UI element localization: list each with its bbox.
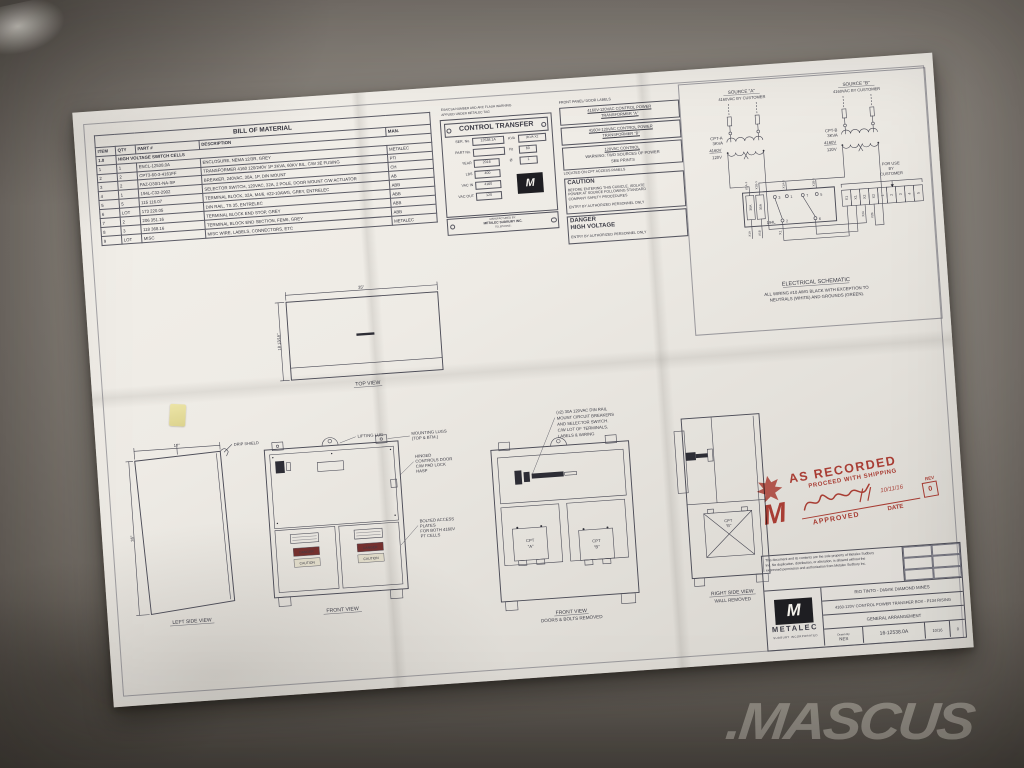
svg-text:4: 4 <box>908 192 912 194</box>
lifting-lug-callout: LIFTING LUG <box>357 432 383 439</box>
selector-switch-icon <box>685 452 696 461</box>
bolt-hole-icon <box>449 224 455 230</box>
svg-text:3: 3 <box>899 193 903 195</box>
view-caption: LEFT SIDE VIEW <box>172 617 212 626</box>
control-transfer-plate: CONTROL TRANSFER SER. No. 12538.1A PART … <box>440 112 559 218</box>
svg-text:HASP: HASP <box>416 468 428 474</box>
svg-text:PT CELLS: PT CELLS <box>420 532 440 538</box>
source-b: SOURCE "B" 4160VAC BY CUSTOMER CPT-B 3KV… <box>820 79 885 153</box>
svg-text:120V: 120V <box>827 147 837 153</box>
svg-text:CPT: CPT <box>526 538 535 544</box>
svg-text:X2: X2 <box>863 194 867 199</box>
svg-text:5: 5 <box>917 192 921 194</box>
svg-text:X2A: X2A <box>861 211 865 217</box>
switch-part-label: 194L <box>766 219 776 225</box>
svg-text:LABELS & WIRING: LABELS & WIRING <box>558 431 595 439</box>
drawn-by-cell: Drawn By NES <box>824 627 864 646</box>
bolt-hole-icon <box>551 217 557 223</box>
svg-text:5: 5 <box>820 193 822 197</box>
drip-shield-callout: DRIP SHIELD <box>234 440 259 447</box>
svg-text:X1A: X1A <box>747 231 751 237</box>
bom-table: BILL OF MATERIAL ITEM QTY PART # DESCRIP… <box>94 112 438 246</box>
door-labels-group: FRONT PANEL/ DOOR LABELS 4160V-120VAC CO… <box>559 92 679 100</box>
svg-text:2: 2 <box>786 219 788 223</box>
source-a: SOURCE "A" 4160VAC BY CUSTOMER CPT-A 3KV… <box>705 87 770 161</box>
stamp-rev-box: 0 <box>922 481 939 498</box>
svg-text:"B": "B" <box>726 523 732 528</box>
svg-text:4160VAC BY CUSTOMER: 4160VAC BY CUSTOMER <box>833 86 880 94</box>
cpt-b-transformer: CPT "B" <box>703 506 754 557</box>
caution-label: CAUTION BEFORE ENTERING THIS CUBICLE, IS… <box>564 170 686 214</box>
svg-text:(TOP & BTM.): (TOP & BTM.) <box>412 434 439 441</box>
svg-text:7: 7 <box>806 194 808 198</box>
revision-grid <box>902 543 962 581</box>
metalec-logo-icon: M <box>517 172 544 194</box>
electrical-schematic: SOURCE "A" 4160VAC BY CUSTOMER CPT-A 3KV… <box>679 68 942 333</box>
photo-of-drawing: .MASCUS BILL OF MATERIAL ITEM QTY PART #… <box>0 0 1024 768</box>
svg-text:WALL REMOVED: WALL REMOVED <box>714 596 752 604</box>
dim-width: 35" <box>358 284 365 289</box>
yellow-sticker <box>169 404 186 427</box>
drawing-sheet: BILL OF MATERIAL ITEM QTY PART # DESCRIP… <box>72 53 973 708</box>
svg-text:X2: X2 <box>872 194 876 199</box>
svg-text:X1: X1 <box>854 195 858 200</box>
svg-text:X1: X1 <box>778 230 782 235</box>
svg-text:X1B-1: X1B-1 <box>811 178 816 187</box>
breaker-rating: 30A <box>759 203 763 210</box>
dim-width: 17" <box>173 443 180 448</box>
schematic-panel: SOURCE "A" 4160VAC BY CUSTOMER CPT-A 3KV… <box>678 67 943 336</box>
floor-light-patch <box>0 0 70 60</box>
top-view: 35" 18 13/16" TOP VIEW <box>257 276 476 399</box>
svg-text:DOORS & BOLTS REMOVED: DOORS & BOLTS REMOVED <box>541 614 604 623</box>
title-block: This document and its contents are the s… <box>761 542 967 652</box>
dim-height: 36" <box>129 535 134 542</box>
svg-text:1: 1 <box>790 195 792 199</box>
mini-caution-label: CAUTION <box>294 558 320 568</box>
svg-text:X1A-1: X1A-1 <box>781 180 786 189</box>
cpt-b-transformer: CPT "B" <box>578 526 614 565</box>
svg-text:120V: 120V <box>712 155 722 161</box>
svg-text:"A": "A" <box>528 544 535 549</box>
svg-text:CUSTOMER: CUSTOMER <box>880 170 903 177</box>
svg-text:X2B: X2B <box>870 212 874 218</box>
svg-text:4160VAC BY CUSTOMER: 4160VAC BY CUSTOMER <box>718 94 765 102</box>
drawing-number: 16-12538.0A <box>863 623 926 643</box>
svg-text:X1B: X1B <box>757 230 761 236</box>
breaker-rating: 30A <box>749 204 753 211</box>
svg-text:CPT: CPT <box>592 538 601 544</box>
svg-text:X1: X1 <box>845 196 849 201</box>
metalec-logo-icon: M <box>774 597 814 625</box>
svg-text:X1B-1: X1B-1 <box>754 181 759 190</box>
mini-danger-label: DANGER <box>293 547 319 557</box>
handle-icon <box>356 332 374 336</box>
selector-switch-icon <box>275 461 285 474</box>
cpt-a-transformer: CPT "A" <box>512 525 549 566</box>
danger-label: DANGER HIGH VOLTAGE ENTRY BY AUTHORIZED … <box>567 208 689 244</box>
terminal-strip: X1 X1 X2 X2 1 2 3 4 5 X2A X2B FOR USE BY… <box>840 159 925 220</box>
drawing-date: 10/16 <box>925 621 951 639</box>
metalec-logo: M METALEC SUDBURY INCORPORATED <box>764 588 825 650</box>
mini-danger-label: DANGER <box>357 542 383 552</box>
dim-depth: 18 13/16" <box>276 333 282 351</box>
svg-text:3KVA: 3KVA <box>827 132 838 138</box>
svg-text:6: 6 <box>819 217 821 221</box>
mini-caution-label: CAUTION <box>358 553 384 563</box>
svg-text:X1A-1: X1A-1 <box>744 181 749 190</box>
svg-text:2: 2 <box>890 194 894 196</box>
svg-text:3: 3 <box>778 196 780 200</box>
mascus-watermark: .MASCUS <box>723 691 976 751</box>
svg-text:3KVA: 3KVA <box>712 140 723 146</box>
drawing-rev: 0 <box>950 620 966 637</box>
serial-value: 12538.1A <box>472 136 504 146</box>
nameplate-group: ESA/CSA NUMBER AND ARC FLASH WARNING APP… <box>439 101 551 109</box>
svg-text:"B": "B" <box>594 544 601 549</box>
selector-switch-icon <box>514 470 522 484</box>
svg-text:1: 1 <box>881 194 885 196</box>
front-view: DANGER CAUTION DANGER CAUTION LIFTING L <box>261 421 493 622</box>
